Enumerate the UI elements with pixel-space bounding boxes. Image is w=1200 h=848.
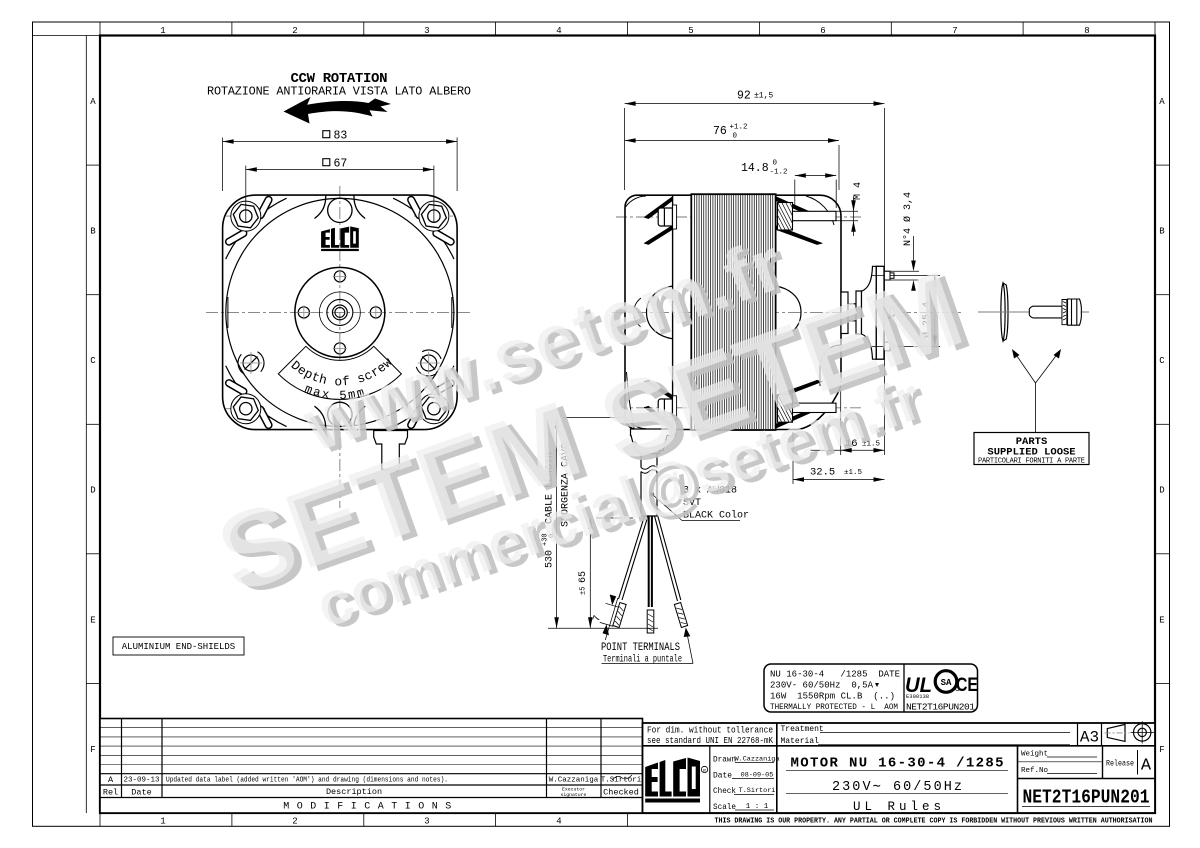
svg-text:POINT TERMINALS: POINT TERMINALS <box>601 642 680 654</box>
svg-text:MOTOR NU 16-30-4 /1285: MOTOR NU 16-30-4 /1285 <box>791 756 1004 772</box>
svg-text:-1.2: -1.2 <box>770 169 788 177</box>
svg-text:M 4: M 4 <box>853 182 864 200</box>
svg-text:76: 76 <box>713 125 727 138</box>
svg-text:1: 1 <box>160 817 165 827</box>
svg-text:Date: Date <box>713 771 732 781</box>
svg-text:For dim. without tollerance: For dim. without tollerance <box>647 726 773 736</box>
svg-text:T.Sirtori: T.Sirtori <box>739 787 776 795</box>
svg-text:+1.2: +1.2 <box>730 124 748 132</box>
svg-text:signature: signature <box>561 792 587 798</box>
svg-text:4: 4 <box>556 817 561 827</box>
svg-text:N°4 Ø 3,4: N°4 Ø 3,4 <box>902 192 914 246</box>
svg-text:Ref.No: Ref.No <box>1021 767 1049 775</box>
svg-text:CE: CE <box>956 675 978 696</box>
svg-text:F: F <box>90 745 95 755</box>
svg-text:see standard UNI EN 22768-mK: see standard UNI EN 22768-mK <box>647 736 773 746</box>
svg-text:A: A <box>1159 97 1165 107</box>
svg-text:Updated data label (added writ: Updated data label (added written 'AOM')… <box>166 777 448 785</box>
svg-text:Release: Release <box>1106 759 1134 769</box>
svg-text:A: A <box>108 775 114 785</box>
svg-text:±1,5: ±1,5 <box>754 92 773 101</box>
svg-text:A: A <box>1141 757 1152 776</box>
svg-text:THIS DRAWING IS OUR PROPERTY.: THIS DRAWING IS OUR PROPERTY. ANY PARTIA… <box>715 818 1153 826</box>
svg-text:PARTICOLARI FORNITI A PARTE: PARTICOLARI FORNITI A PARTE <box>978 458 1085 466</box>
svg-text:B: B <box>90 227 96 237</box>
svg-text:230V- 60/50Hz 0,5A: 230V- 60/50Hz 0,5A <box>770 681 874 691</box>
svg-text:ALUMINIUM END-SHIELDS: ALUMINIUM END-SHIELDS <box>122 642 235 652</box>
svg-text:C: C <box>1159 356 1165 366</box>
svg-text:NET2T16PUN201: NET2T16PUN201 <box>906 702 975 713</box>
svg-text:±1.5: ±1.5 <box>844 469 863 477</box>
svg-text:Treatment: Treatment <box>781 725 824 734</box>
svg-text:±5: ±5 <box>580 587 588 595</box>
svg-text:Check: Check <box>713 786 736 796</box>
svg-text:0: 0 <box>773 160 778 168</box>
svg-text:67: 67 <box>334 158 348 171</box>
svg-text:C: C <box>90 356 96 366</box>
svg-text:2: 2 <box>292 817 297 827</box>
svg-text:Date: Date <box>131 788 151 798</box>
svg-text:ROTAZIONE ANTIORARIA VISTA LAT: ROTAZIONE ANTIORARIA VISTA LATO ALBERO <box>207 85 471 99</box>
svg-text:Scale: Scale <box>713 802 736 812</box>
svg-text:Weight: Weight <box>1021 751 1048 759</box>
svg-text:Description: Description <box>326 787 382 797</box>
svg-text:F: F <box>1159 745 1164 755</box>
svg-text:3: 3 <box>424 817 429 827</box>
svg-text:E300138: E300138 <box>906 693 929 700</box>
svg-text:A3: A3 <box>1080 729 1099 747</box>
svg-text:D: D <box>90 486 95 496</box>
svg-text:14.8: 14.8 <box>741 162 769 175</box>
svg-text:SA: SA <box>941 678 952 688</box>
svg-text:Rel: Rel <box>103 788 118 798</box>
svg-text:NU 16-30-4 /1285 DATE: NU 16-30-4 /1285 DATE <box>770 670 900 680</box>
svg-text:Material: Material <box>781 737 820 746</box>
svg-text:A: A <box>90 97 96 107</box>
svg-text:Executor: Executor <box>562 787 585 793</box>
svg-text:16W 1550Rpm CL.B (..): 16W 1550Rpm CL.B (..) <box>770 692 895 702</box>
svg-text:Drawn: Drawn <box>713 755 736 765</box>
svg-text:65: 65 <box>578 571 589 583</box>
svg-text:R: R <box>703 768 706 774</box>
svg-text:Checked: Checked <box>603 788 639 798</box>
svg-text:23-09-13: 23-09-13 <box>123 777 160 785</box>
svg-text:E: E <box>1159 615 1164 625</box>
svg-text:0: 0 <box>733 133 738 141</box>
svg-text:B: B <box>1159 227 1165 237</box>
svg-text:NET2T16PUN201: NET2T16PUN201 <box>1023 787 1150 809</box>
svg-text:W.Cazzaniga: W.Cazzaniga <box>549 777 599 785</box>
svg-text:92: 92 <box>737 90 751 103</box>
svg-text:THERMALLY PROTECTED - L AOM: THERMALLY PROTECTED - L AOM <box>770 703 898 712</box>
svg-text:E: E <box>90 615 95 625</box>
svg-text:MODIFICATIONS: MODIFICATIONS <box>283 802 459 813</box>
svg-text:83: 83 <box>334 130 348 143</box>
svg-text:D: D <box>1159 486 1164 496</box>
